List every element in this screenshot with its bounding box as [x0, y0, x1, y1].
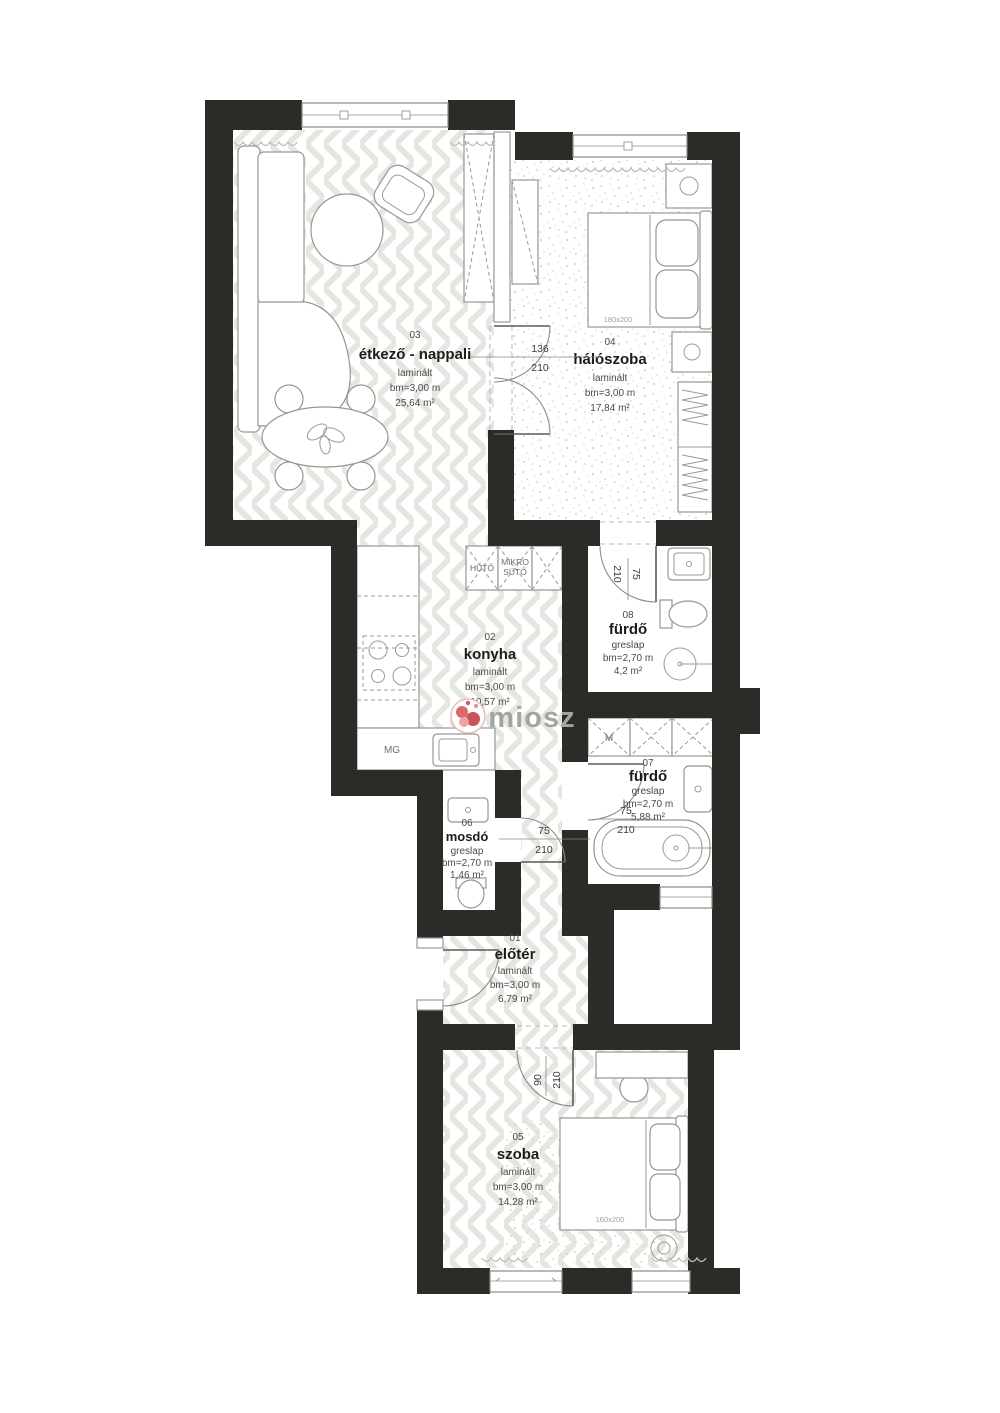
room-01-num: 01: [509, 933, 521, 944]
room-04-floor: laminált: [593, 373, 628, 384]
kitchen-sink: [433, 734, 479, 766]
microwave-label-line1: MIKRO: [501, 557, 529, 567]
bath08-toilet: [660, 600, 707, 628]
fixtures-bath08: [660, 548, 712, 680]
room-04-area: 17,84 m²: [590, 403, 630, 414]
bath08-shower: [664, 648, 712, 680]
room-08-clearance: bm=2,70 m: [603, 653, 653, 664]
sofa-backrest: [238, 146, 260, 432]
room-08-name: fürdő: [609, 621, 647, 638]
doordim-height: 210: [551, 1071, 563, 1089]
room-02-floor: laminált: [473, 667, 508, 678]
room-04-clearance: bm=3,00 m: [585, 388, 635, 399]
room-03-floor: laminált: [398, 368, 433, 379]
window-bedroom: [573, 135, 687, 157]
room-03-clearance: bm=3,00 m: [390, 383, 440, 394]
doordim-height: 210: [611, 565, 623, 583]
doordim-height: 210: [531, 362, 549, 374]
doordim-height: 210: [617, 824, 635, 836]
label-room-08: 08 fürdő greslap bm=2,70 m 4,2 m²: [603, 610, 653, 677]
room-04-num: 04: [604, 337, 616, 348]
fridge-label: HŰTŐ: [470, 563, 494, 573]
floor-plan: 03 étkező - nappali laminált bm=3,00 m 2…: [0, 0, 1000, 1413]
room-06-area: 1,46 m²: [450, 870, 485, 881]
doordim-width: 75: [538, 825, 550, 837]
microwave-label-line2: SÜTŐ: [503, 567, 527, 577]
room-01-name: előtér: [495, 946, 536, 963]
room-03-area: 25,64 m²: [395, 398, 435, 409]
room-06-clearance: bm=2,70 m: [442, 858, 492, 869]
tall-unit: [532, 546, 562, 590]
watermark: miosz: [451, 699, 576, 734]
mosdo-toilet: [456, 878, 486, 908]
floor-plan-page: 03 étkező - nappali laminált bm=3,00 m 2…: [0, 0, 1000, 1413]
partition-light: [494, 132, 510, 322]
watermark-brand: miosz: [488, 702, 575, 734]
room-05-name: szoba: [497, 1146, 540, 1163]
doordim-height: 210: [535, 844, 553, 856]
room-05-floor: laminált: [501, 1167, 536, 1178]
kitchen-counter-left: [357, 546, 419, 728]
room-01-area: 6,79 m²: [498, 994, 533, 1005]
room-07-floor: greslap: [632, 786, 665, 797]
room-05-num: 05: [512, 1132, 524, 1143]
bath07-cabinet-3: [672, 718, 714, 756]
room-01-clearance: bm=3,00 m: [490, 980, 540, 991]
room-08-floor: greslap: [612, 640, 645, 651]
miosz-logo-icon: [451, 699, 485, 733]
bedroom-wardrobe-left: [512, 180, 538, 284]
tall-cabinet: [464, 134, 494, 302]
bathtub: [594, 820, 712, 876]
room-07-area: 5,88 m²: [631, 812, 666, 823]
room-08-num: 08: [622, 610, 634, 621]
room-02-num: 02: [484, 632, 496, 643]
window-room05-left: [490, 1271, 562, 1292]
room-06-floor: greslap: [451, 846, 484, 857]
nightstand-bottom: [672, 332, 712, 372]
bath08-sink: [668, 548, 710, 580]
room-06-name: mosdó: [446, 829, 489, 844]
doordim-width: 75: [630, 568, 642, 580]
bath07-sink: [684, 766, 712, 812]
room-04-name: hálószoba: [573, 351, 647, 368]
window-room05-right: [632, 1271, 690, 1292]
room-03-num: 03: [409, 330, 421, 341]
room-02-name: konyha: [464, 646, 517, 663]
bath07-cabinet-2: [630, 718, 672, 756]
bed-second-size: 160x200: [596, 1215, 625, 1224]
window-living: [302, 103, 448, 127]
washer-label: M: [605, 733, 613, 744]
doordim-width: 90: [532, 1074, 544, 1086]
label-room-06: 06 mosdó greslap bm=2,70 m 1,46 m²: [442, 818, 492, 881]
desk: [596, 1052, 688, 1078]
room-07-name: fürdő: [629, 768, 667, 785]
room-01-floor: laminált: [498, 966, 533, 977]
window-bath07: [660, 887, 712, 908]
doordim-width: 75: [620, 805, 632, 817]
dishwasher-label: MG: [384, 745, 400, 756]
bed-master-size: 180x200: [604, 315, 633, 324]
room-02-clearance: bm=3,00 m: [465, 682, 515, 693]
room-05-area: 14,28 m²: [498, 1197, 538, 1208]
bed-master: [588, 211, 712, 329]
room-06-num: 06: [461, 818, 473, 829]
bedroom-wardrobe-right: [678, 382, 712, 512]
room-03-name: étkező - nappali: [359, 346, 472, 363]
dining-table: [262, 407, 388, 467]
room-05-clearance: bm=3,00 m: [493, 1182, 543, 1193]
coffee-table: [311, 194, 383, 266]
sofa-seat: [258, 152, 304, 304]
room-08-area: 4,2 m²: [614, 666, 643, 677]
doordim-width: 136: [531, 343, 549, 355]
